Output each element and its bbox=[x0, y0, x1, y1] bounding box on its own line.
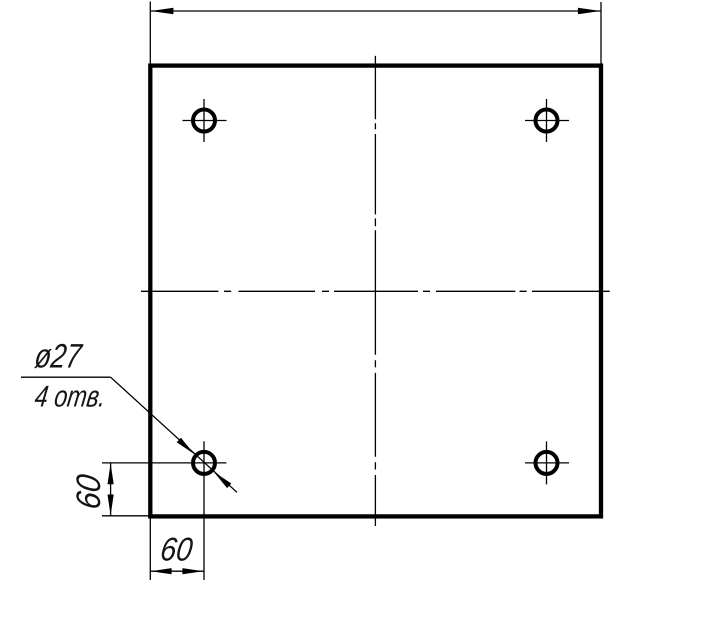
svg-text:4 отв.: 4 отв. bbox=[33, 381, 108, 414]
svg-text:60: 60 bbox=[158, 532, 195, 569]
svg-text:ø27: ø27 bbox=[32, 337, 85, 375]
svg-text:60: 60 bbox=[70, 472, 108, 511]
